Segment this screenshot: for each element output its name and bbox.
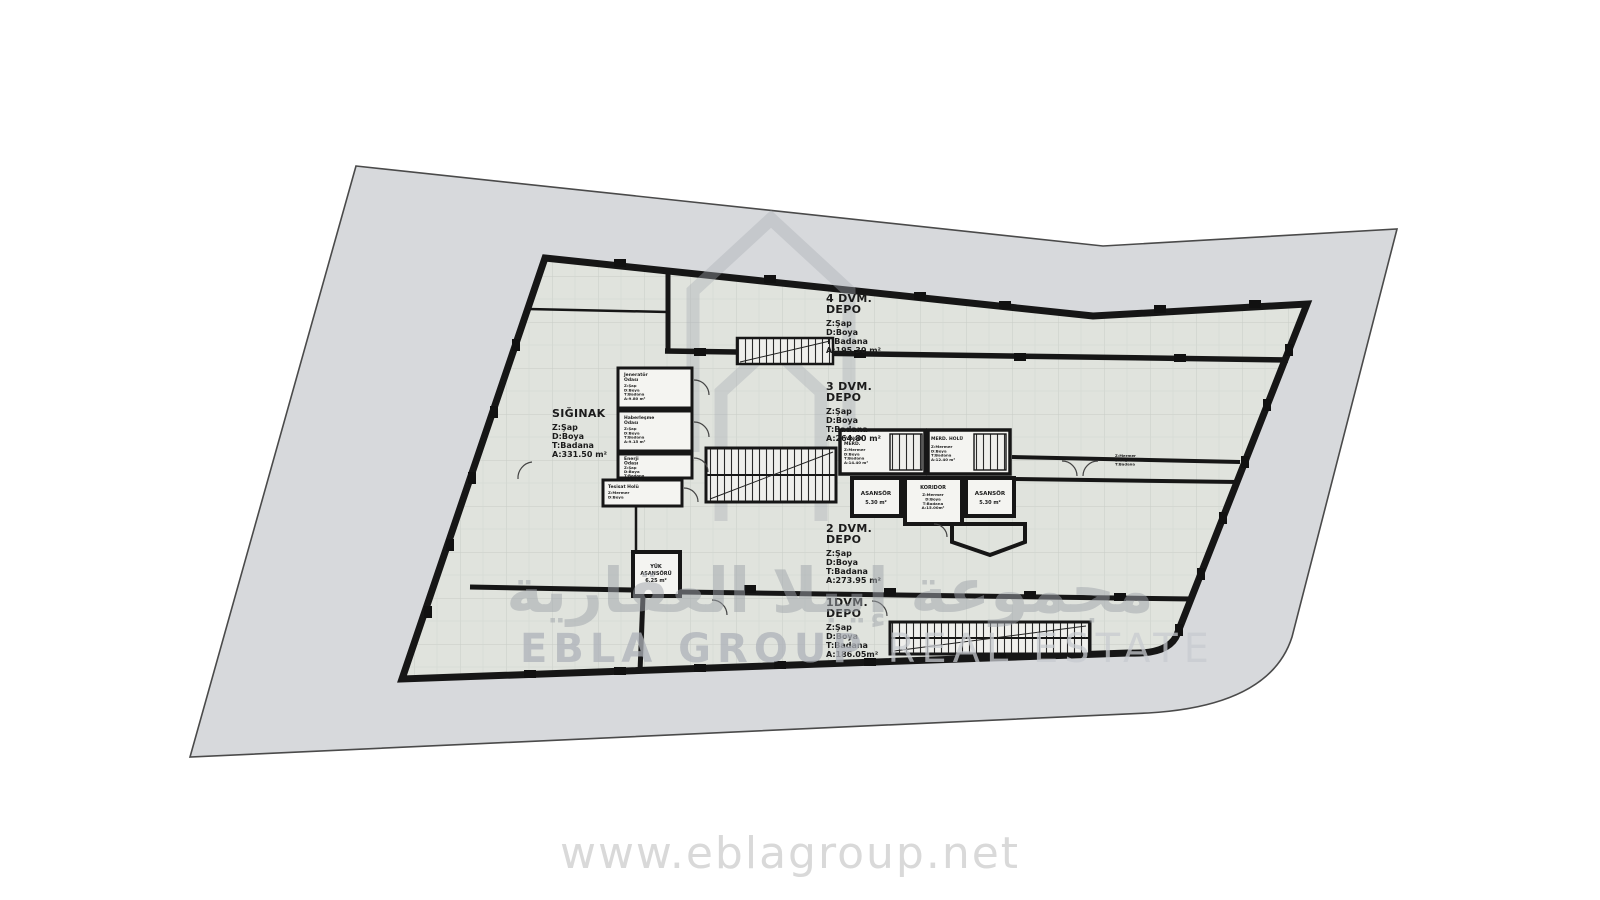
floorplan-canvas: 4 DVM.DEPO Z:ŞapD:BoyaT:BadanaA:195.30 m…: [0, 0, 1600, 900]
room-merdhol-name: MERD. HOLÜ: [931, 435, 963, 442]
room-koridor-specs: Z:MermerD:BoyaT:BadanaA:15.00m²: [922, 492, 945, 510]
zone-siginak-title: SIĞINAK: [552, 407, 606, 420]
floorplan-page: 4 DVM.DEPO Z:ŞapD:BoyaT:BadanaA:195.30 m…: [0, 0, 1600, 900]
room-yangin-name: YANGINMERD.: [843, 436, 863, 447]
stair-central: [706, 448, 836, 502]
watermark-english: EBLA GROUP REAL ESTATE: [520, 626, 1215, 672]
room-asansor-left-area: 5.30 m²: [865, 500, 886, 506]
room-asansor-right-name: ASANSÖR: [975, 490, 1006, 497]
room-asansor-right-area: 5.30 m²: [979, 500, 1000, 506]
room-asansor-left-name: ASANSÖR: [861, 490, 892, 497]
stair-upper: [737, 338, 833, 364]
room-koridor-name: KORIDOR: [920, 485, 946, 491]
watermark-arabic: مجموعة إيبلا العقارية: [506, 554, 1154, 627]
watermark-url: www.eblagroup.net: [560, 828, 1020, 879]
